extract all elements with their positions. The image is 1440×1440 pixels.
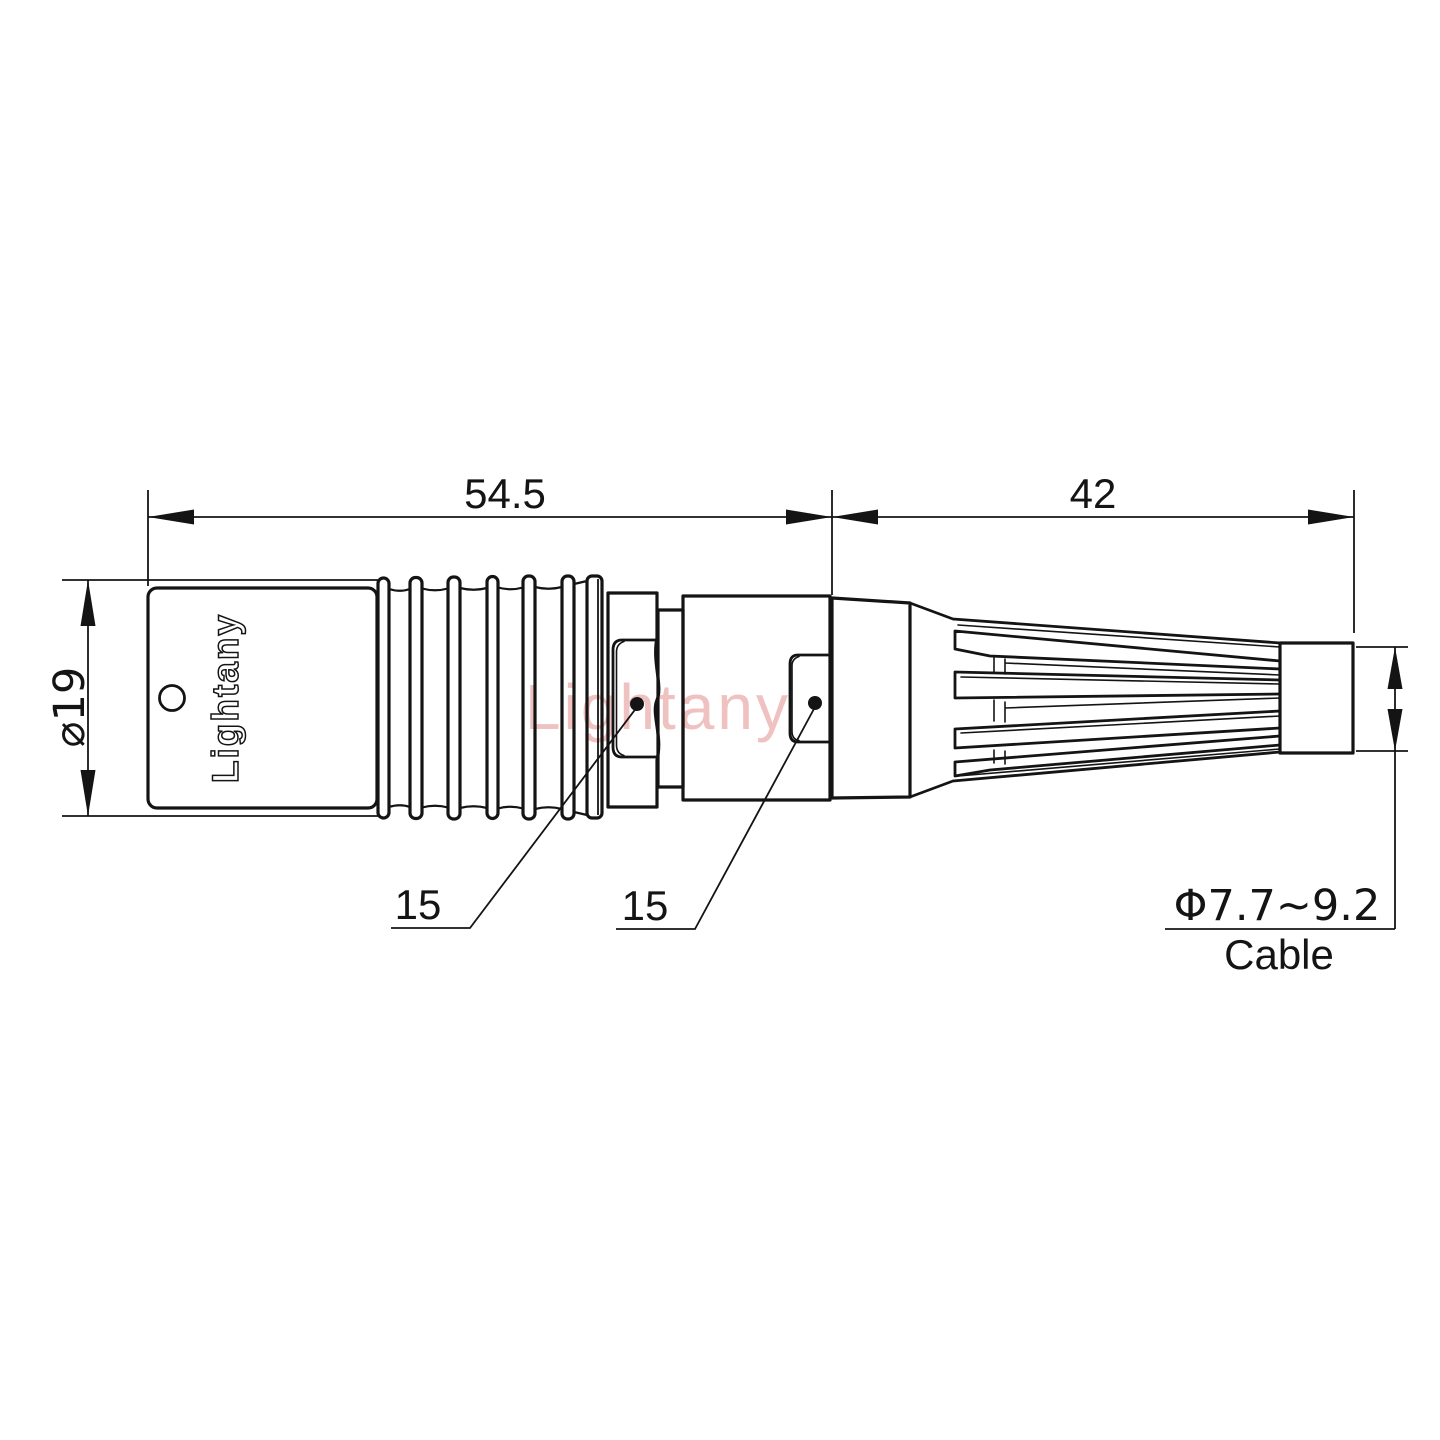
arrowhead-down-icon xyxy=(1388,709,1403,751)
leader-dot-rear xyxy=(808,696,822,710)
grip-rib xyxy=(448,577,460,819)
front-thread-value: 15 xyxy=(395,881,442,928)
fin-detail-edges xyxy=(958,625,1280,776)
leader-dot-front xyxy=(630,697,644,711)
connector-technical-drawing: Lightany Lightany xyxy=(0,0,1440,1440)
cable-label: Cable xyxy=(1224,931,1334,978)
dimension-front-length: 54.5 xyxy=(148,470,832,525)
arrowhead-right-icon xyxy=(1308,510,1354,525)
grip-rib xyxy=(410,578,422,819)
arrowhead-up-icon xyxy=(81,580,96,626)
dimension-body-diameter-value: ⌀19 xyxy=(45,667,95,748)
strain-relief-fins xyxy=(910,603,1280,797)
keyway-slot-rear-inner-edge xyxy=(792,657,799,741)
cable-range-value: Φ7.7~9.2 xyxy=(1174,881,1381,931)
technical-drawing-page: Lightany Lightany xyxy=(0,0,1440,1440)
connector-body: Lightany xyxy=(148,588,377,808)
arrowhead-right-icon xyxy=(786,510,832,525)
arrowhead-left-icon xyxy=(148,510,194,525)
cable-collar xyxy=(1280,643,1353,753)
dimension-body-diameter: ⌀19 xyxy=(45,580,96,816)
grip-rib xyxy=(487,577,498,819)
body-dot-marker xyxy=(160,686,185,711)
boot-collar xyxy=(832,598,910,798)
rear-thread-value: 15 xyxy=(622,882,669,929)
arrowhead-down-icon xyxy=(81,770,96,816)
dimension-cable-range: Φ7.7~9.2 Cable xyxy=(1165,647,1403,978)
body-brand-text: Lightany xyxy=(205,613,246,783)
body-outline xyxy=(148,588,377,808)
dimension-rear-length: 42 xyxy=(832,470,1354,525)
arrowhead-up-icon xyxy=(1388,647,1403,689)
grip-rib xyxy=(378,578,389,818)
dimension-rear-length-value: 42 xyxy=(1070,470,1117,517)
arrowhead-left-icon xyxy=(832,510,878,525)
dimension-front-length-value: 54.5 xyxy=(464,470,546,517)
